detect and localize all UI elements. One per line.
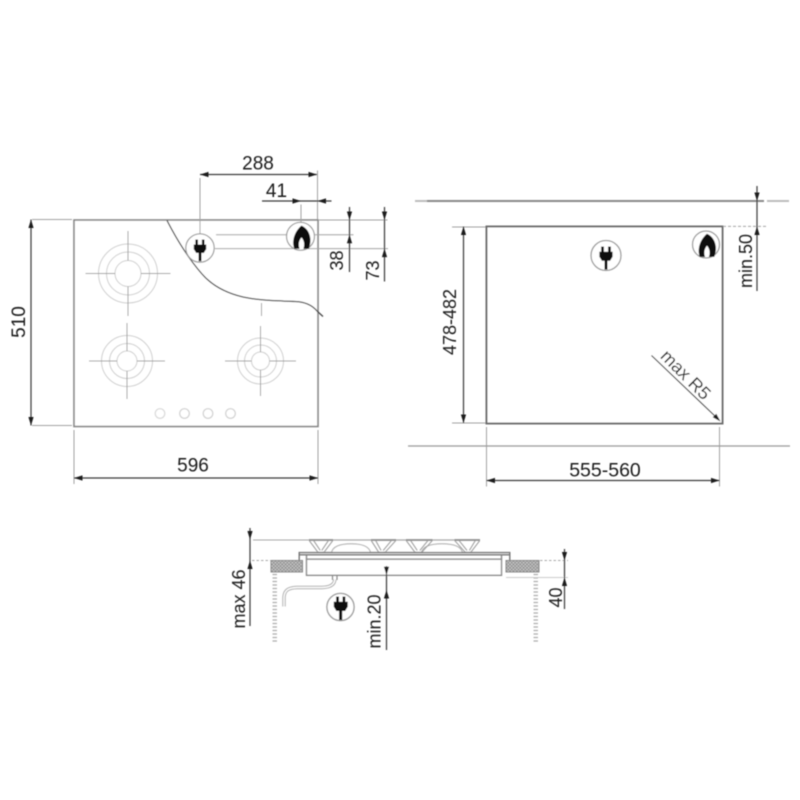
- svg-text:555-560: 555-560: [569, 460, 641, 482]
- svg-text:40: 40: [546, 587, 566, 607]
- svg-text:38: 38: [327, 250, 347, 270]
- svg-text:min.20: min.20: [365, 594, 385, 648]
- svg-text:max 46: max 46: [229, 569, 249, 628]
- svg-text:min.50: min.50: [736, 234, 756, 288]
- svg-text:41: 41: [266, 181, 287, 202]
- svg-text:596: 596: [177, 456, 209, 477]
- svg-text:73: 73: [363, 260, 383, 280]
- svg-text:288: 288: [242, 154, 274, 175]
- svg-text:510: 510: [9, 306, 30, 338]
- svg-text:478-482: 478-482: [440, 289, 460, 355]
